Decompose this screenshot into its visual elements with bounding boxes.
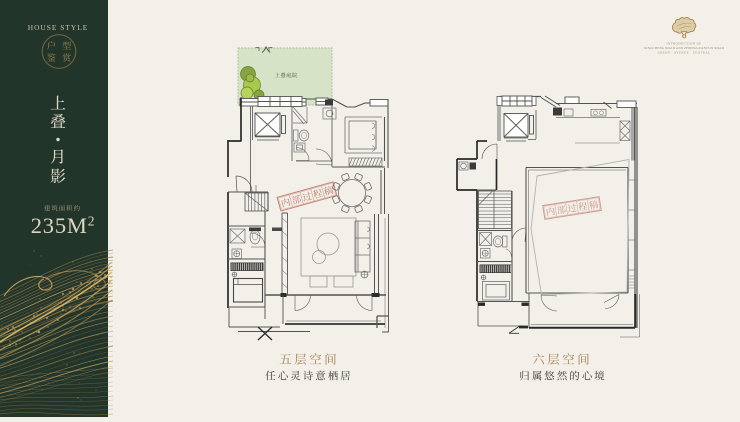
svg-text:INTRODUCTION OF: INTRODUCTION OF [667, 42, 702, 46]
svg-text:GREEN · AVENUE · CENTRAL: GREEN · AVENUE · CENTRAL [658, 51, 711, 55]
svg-text:HOUSE STYLE: HOUSE STYLE [28, 23, 88, 32]
svg-text:XINGCHENG ROAD AND ZHONGGUANCU: XINGCHENG ROAD AND ZHONGGUANCUN ROAD [644, 46, 725, 50]
svg-text:235M2: 235M2 [31, 213, 96, 238]
